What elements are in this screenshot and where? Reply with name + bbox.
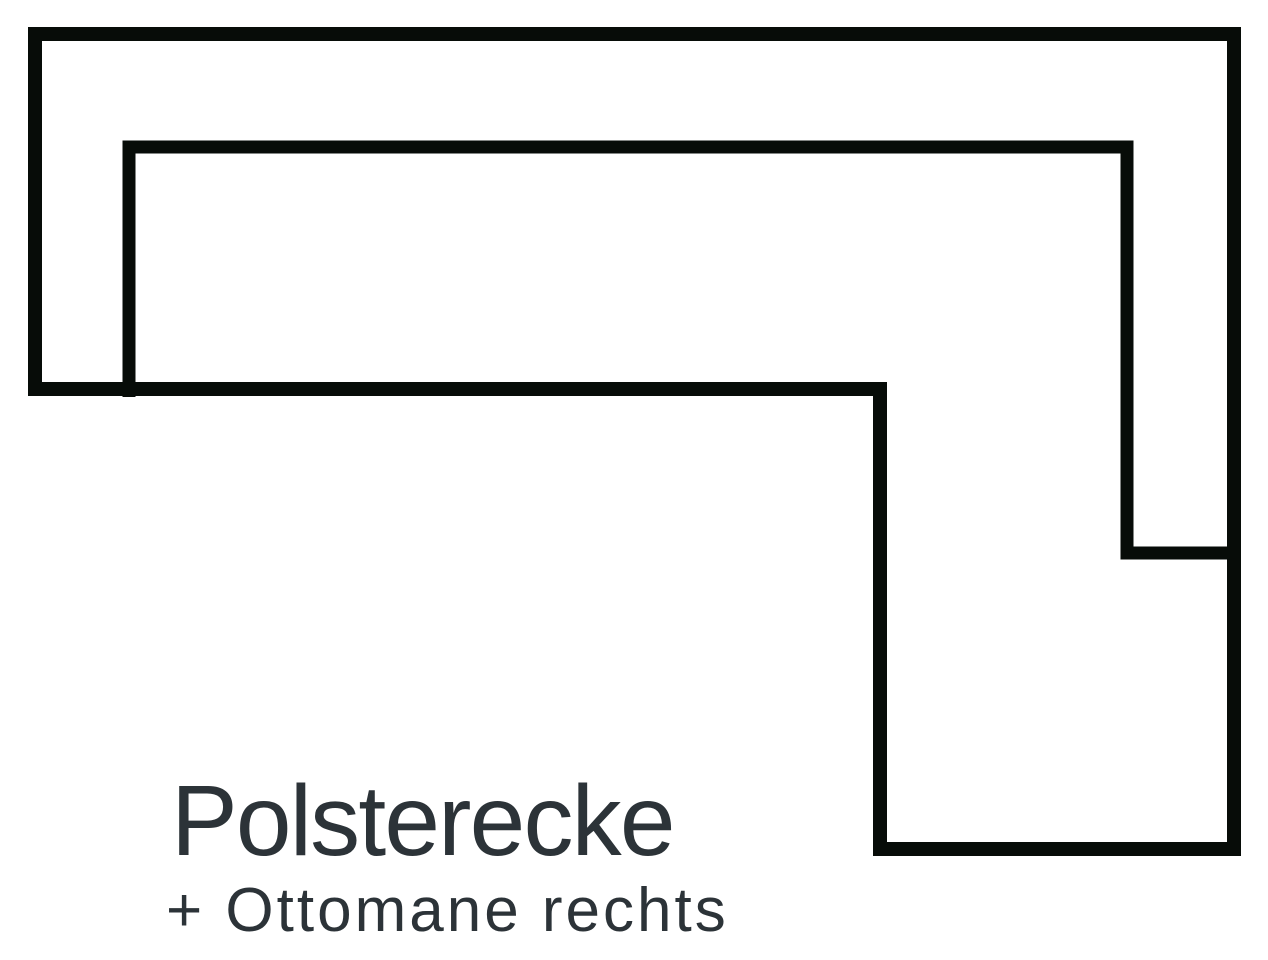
product-variant-label: + Ottomane rechts [166, 876, 729, 945]
product-schematic-canvas: Polsterecke + Ottomane rechts [0, 0, 1268, 960]
product-type-label: Polsterecke [171, 765, 674, 877]
sofa-floorplan-diagram: Polsterecke + Ottomane rechts [0, 0, 1268, 960]
sofa-outline-outer [35, 34, 1234, 849]
sofa-outline-inner-backrest [129, 147, 1241, 553]
